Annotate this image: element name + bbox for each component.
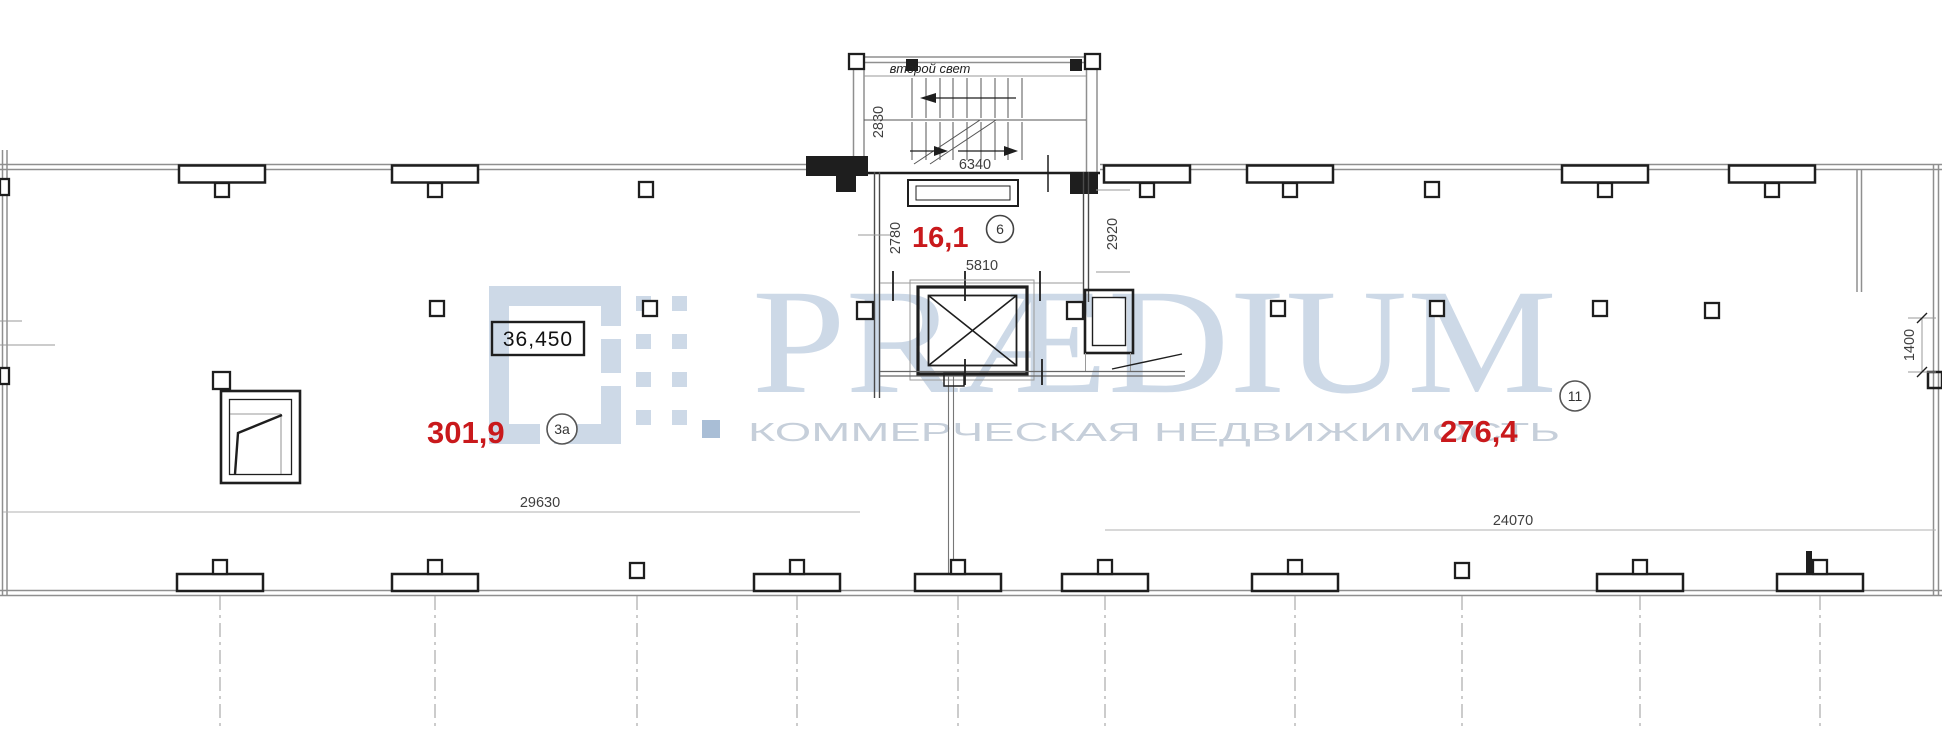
top-pilasters — [179, 166, 1815, 198]
column-marker — [213, 372, 230, 389]
stair-corner-column — [1085, 54, 1100, 69]
area-label-left: 301,9 — [427, 415, 505, 450]
second-light-opening-inner — [916, 186, 1010, 200]
column-marker — [630, 563, 644, 578]
column-marker — [1067, 302, 1083, 319]
pilaster — [754, 574, 840, 591]
level-mark-value: 36,450 — [503, 328, 573, 351]
column-marker — [1430, 301, 1444, 316]
column-marker — [1455, 563, 1469, 578]
column-marker — [639, 182, 653, 197]
pilaster — [1562, 166, 1648, 183]
door-frame-outer — [221, 391, 300, 483]
dim-hall-right: 2920 — [1105, 218, 1121, 250]
pilaster-pendant — [1283, 183, 1297, 197]
stair-arrowhead-right — [1004, 146, 1018, 156]
column-marker — [1593, 301, 1607, 316]
pilaster-pendant — [1813, 560, 1827, 574]
pilaster-pendant — [1098, 560, 1112, 574]
pilaster — [1729, 166, 1815, 183]
dim-right-offset: 1400 — [1902, 329, 1918, 361]
column-marker — [1705, 303, 1719, 318]
right-inner-wall-stub — [1857, 170, 1862, 292]
pilaster — [1597, 574, 1683, 591]
watermark-brand-text: PRÆDIUM — [752, 259, 1557, 425]
pilaster-pendant — [215, 183, 229, 197]
pilaster — [1252, 574, 1338, 591]
wall-tie-marker — [0, 368, 9, 384]
watermark: PRÆDIUM КОММЕРЧЕСКАЯ НЕДВИЖИМОСТЬ — [499, 259, 1560, 447]
pilaster — [915, 574, 1001, 591]
pilaster — [1247, 166, 1333, 183]
column-marker — [643, 301, 657, 316]
wall-tie-marker — [0, 179, 9, 195]
dim-left-span: 29630 — [520, 495, 560, 511]
pilaster-pendant — [1765, 183, 1779, 197]
room-number-right: 11 — [1568, 388, 1583, 404]
pilaster-pendant — [1288, 560, 1302, 574]
column-marker — [1271, 301, 1285, 316]
column-marker — [1425, 182, 1439, 197]
stair-walls — [851, 56, 1099, 172]
pilaster — [1104, 166, 1190, 183]
watermark-bullet — [702, 420, 720, 438]
pilaster-pendant — [951, 560, 965, 574]
bottom-pilasters — [177, 560, 1863, 591]
second-light-opening — [908, 180, 1018, 206]
stair-arrowhead-left — [920, 93, 936, 103]
pilaster — [177, 574, 263, 591]
pilaster-pendant — [428, 183, 442, 197]
room-number-left: 3а — [554, 421, 570, 437]
area-label-right: 276,4 — [1440, 414, 1518, 449]
pilaster — [1062, 574, 1148, 591]
watermark-logo-notch — [596, 373, 622, 386]
watermark-logo-square — [499, 296, 611, 434]
pilaster — [179, 166, 265, 183]
floorplan-drawing: PRÆDIUM КОММЕРЧЕСКАЯ НЕДВИЖИМОСТЬ второй… — [0, 0, 1942, 730]
pilaster — [392, 166, 478, 183]
second-light-label: второй свет — [890, 61, 971, 76]
grid-lines — [220, 596, 1820, 730]
pilaster-pendant — [428, 560, 442, 574]
column-marker — [857, 302, 873, 319]
floorplan-canvas: PRÆDIUM КОММЕРЧЕСКАЯ НЕДВИЖИМОСТЬ второй… — [0, 0, 1942, 730]
left-wall-tick-marks — [0, 321, 55, 345]
staircase-block: второй свет 2830 6340 — [806, 54, 1100, 194]
left-door-element — [213, 372, 300, 483]
area-label-hall: 16,1 — [912, 222, 968, 254]
right-wall-column — [1928, 372, 1942, 388]
watermark-tagline-text: КОММЕРЧЕСКАЯ НЕДВИЖИМОСТЬ — [748, 417, 1560, 447]
dim-right-span: 24070 — [1493, 513, 1533, 529]
pilaster-pendant — [1140, 183, 1154, 197]
pilaster-pendant — [1598, 183, 1612, 197]
dim-hall-width: 5810 — [966, 258, 998, 274]
pilaster-pendant — [213, 560, 227, 574]
pilaster — [1777, 574, 1863, 591]
column-marker — [430, 301, 444, 316]
stair-corner-column — [849, 54, 864, 69]
stair-junction-left — [806, 156, 868, 192]
dim-stair-run: 6340 — [959, 157, 991, 173]
dim-stair-depth: 2830 — [871, 106, 887, 138]
wall-stub — [1806, 551, 1812, 575]
room-number-hall: 6 — [996, 221, 1004, 237]
stair-wall-column — [1070, 59, 1082, 71]
pilaster — [392, 574, 478, 591]
dim-hall-left: 2780 — [888, 222, 904, 254]
pilaster-pendant — [790, 560, 804, 574]
pilaster-pendant — [1633, 560, 1647, 574]
door-leaf — [235, 415, 282, 474]
watermark-logo-notch — [596, 326, 622, 339]
stair-arrowhead-right — [934, 146, 948, 156]
